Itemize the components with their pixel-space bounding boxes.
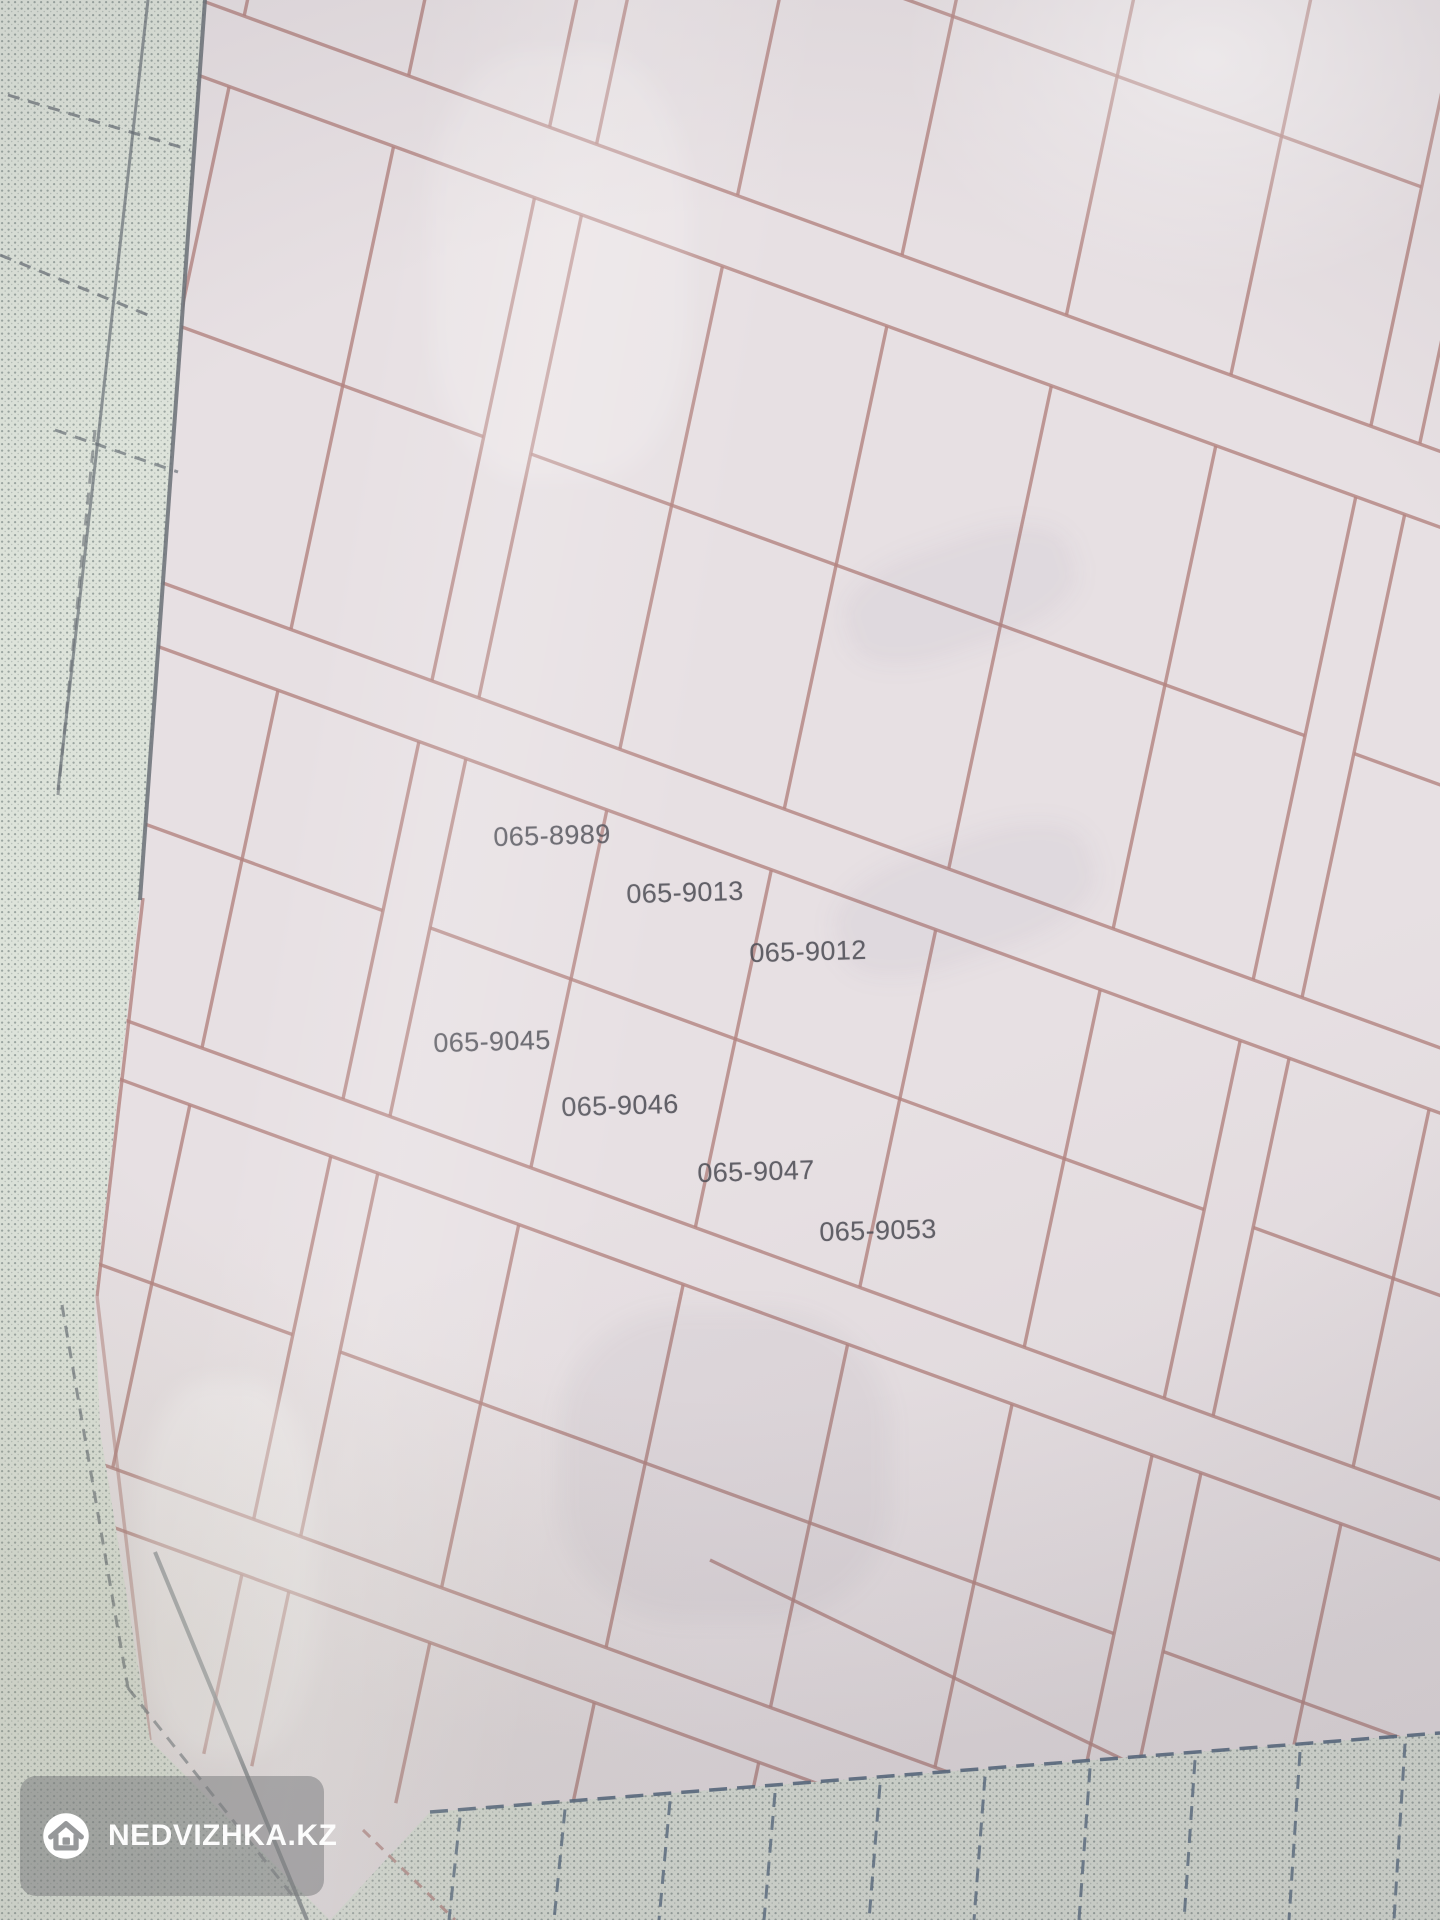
house-icon (38, 1808, 94, 1864)
parcel-grid (0, 0, 1440, 1920)
cadastral-map (0, 0, 1440, 1920)
hatched-zones (0, 0, 1440, 1920)
cadastral-plan-photo: 065-8989065-9013065-9012065-9045065-9046… (0, 0, 1440, 1920)
watermark: NEDVIZHKA.KZ (20, 1776, 324, 1896)
watermark-text: NEDVIZHKA.KZ (108, 1819, 337, 1853)
